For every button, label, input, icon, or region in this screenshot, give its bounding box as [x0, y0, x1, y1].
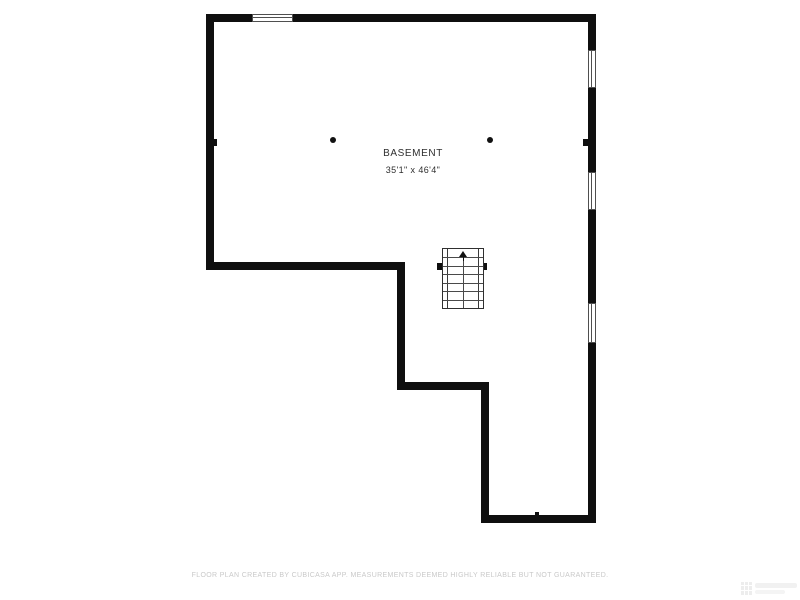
watermark-wordmark [755, 583, 797, 594]
support-column-left [330, 137, 336, 143]
bottom-wall-post [535, 512, 539, 516]
lower-vertical-wall [481, 382, 489, 523]
window-right-1-window-icon [588, 50, 596, 88]
staircase-icon [442, 248, 484, 309]
left-wall-post [212, 139, 217, 146]
window-right-3-window-icon [588, 303, 596, 343]
room-label-block: BASEMENT 35'1" x 46'4" [263, 148, 563, 175]
mls-watermark [741, 579, 797, 597]
mid-vertical-wall [397, 262, 405, 390]
window-right-2-window-icon [588, 172, 596, 210]
room-name-label: BASEMENT [263, 148, 563, 159]
window-top-window-icon [252, 14, 293, 22]
window-pane-line [253, 17, 292, 18]
watermark-grid-icon [741, 582, 752, 595]
step-horizontal-wall [397, 382, 489, 390]
floor-plan-page: BASEMENT 35'1" x 46'4" FLOOR PLAN CREATE… [0, 0, 800, 600]
right-wall [588, 14, 596, 523]
footer-disclaimer: FLOOR PLAN CREATED BY CUBICASA APP. MEAS… [0, 572, 800, 579]
mid-horizontal-wall [206, 262, 405, 270]
right-wall-post [583, 139, 589, 146]
floor-plan-canvas [0, 0, 800, 600]
window-pane-line [591, 173, 592, 209]
window-pane-line [591, 304, 592, 342]
window-pane-line [591, 51, 592, 87]
stair-up-arrow-stem [463, 257, 464, 261]
stair-center-divider [463, 257, 464, 308]
support-column-right [487, 137, 493, 143]
room-dimensions-label: 35'1" x 46'4" [263, 165, 563, 175]
bottom-wall [481, 515, 596, 523]
